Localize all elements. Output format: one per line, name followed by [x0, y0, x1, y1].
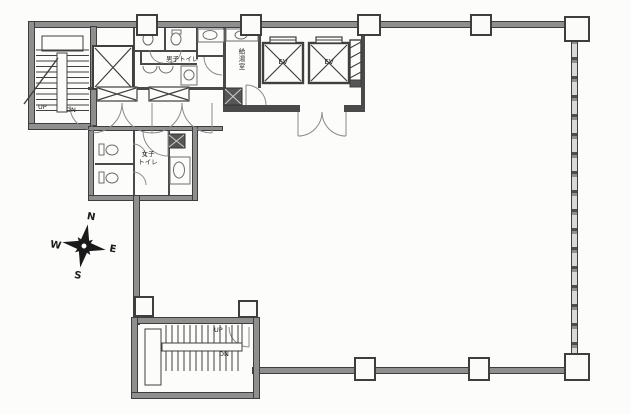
column: [238, 300, 258, 318]
toilet-icon: [106, 145, 118, 155]
compass-w-label: W: [49, 239, 62, 252]
floor-plan: N E S W UP DN 男子トイレ 給湯室 EV EV 女子 トイレ UP …: [0, 0, 631, 414]
toilet-tank-icon: [99, 172, 104, 183]
womens-toilet-label-line1: 女子: [134, 150, 162, 158]
column: [470, 14, 492, 36]
toilet-icon: [106, 173, 118, 183]
partition-womens-sink-strip: [168, 131, 170, 195]
column: [136, 14, 158, 36]
toilet-tank-icon: [172, 30, 181, 34]
wall-upper-stair-left: [28, 21, 35, 130]
column: [240, 14, 262, 36]
compass-n-label: N: [86, 211, 96, 223]
mens-toilet-label: 男子トイレ: [166, 55, 199, 63]
partition-kitchenette-right: [258, 28, 261, 88]
mop-sink-bowl: [184, 70, 194, 80]
partition-shaft-mens: [133, 28, 135, 90]
compass-e-label: E: [108, 244, 117, 256]
urinal-icon: [159, 66, 173, 73]
column-corner-ne: [564, 16, 590, 42]
pipe-space: [350, 40, 361, 87]
partition-core-right: [361, 28, 365, 112]
wall-womens-bottom: [88, 195, 198, 201]
wall-upper-stair-right: [90, 26, 97, 126]
sink-icon: [174, 162, 185, 178]
duct-shaft-kitchen: [224, 88, 242, 105]
partition-mens-stall-front: [135, 50, 197, 52]
wall-right-windows: [571, 21, 578, 374]
wall-lower-stair-top: [131, 317, 260, 324]
column-corner-se: [564, 353, 590, 381]
service-shaft: [93, 46, 133, 89]
partition-urinal-left: [140, 50, 142, 65]
partition-mens-stall-divider: [164, 28, 166, 52]
lower-stair-dn-label: DN: [219, 350, 229, 358]
partition-washroom-bottom: [196, 55, 225, 57]
duct-shaft-womens: [168, 134, 185, 148]
wall-bottom: [252, 367, 578, 374]
column: [354, 357, 376, 381]
compass-s-label: S: [73, 270, 82, 282]
urinal-icon: [143, 66, 157, 73]
column: [357, 14, 381, 36]
wall-upper-stair-bottom: [28, 123, 97, 130]
wall-corridor-south: [88, 126, 223, 131]
wall-top: [28, 21, 578, 28]
lower-stair-up-label: UP: [214, 326, 223, 334]
sink-icon: [203, 31, 217, 40]
column: [468, 357, 490, 381]
column: [134, 296, 154, 317]
wall-womens-left: [88, 126, 94, 201]
partition-kitchenette-left: [223, 28, 226, 112]
vanity-counter: [170, 157, 190, 184]
partition-evhall-south-a: [223, 105, 300, 112]
toilet-tank-icon: [99, 144, 104, 155]
upper-stair-dn-label: DN: [66, 106, 76, 114]
wall-lower-stair-bottom: [131, 392, 260, 399]
wall-lower-stair-left: [131, 317, 138, 399]
elevator-1-label: EV: [272, 58, 294, 66]
partition-corridor-north: [88, 87, 225, 90]
toilet-icon: [171, 33, 181, 45]
wall-lower-stair-right: [253, 317, 260, 399]
vanity-counter: [198, 29, 224, 42]
partition-womens-stall-divider: [95, 163, 133, 165]
kitchenette-label: 給湯室: [237, 48, 245, 71]
elevator-2-label: EV: [318, 58, 340, 66]
upper-stair-up-label: UP: [38, 103, 47, 111]
mop-sink: [181, 66, 197, 85]
partition-urinal-screen: [140, 63, 197, 65]
womens-toilet-label: 女子 トイレ: [134, 150, 162, 166]
compass-rose: N E S W: [45, 206, 122, 287]
wall-womens-right: [192, 126, 198, 201]
womens-toilet-label-line2: トイレ: [134, 158, 162, 166]
